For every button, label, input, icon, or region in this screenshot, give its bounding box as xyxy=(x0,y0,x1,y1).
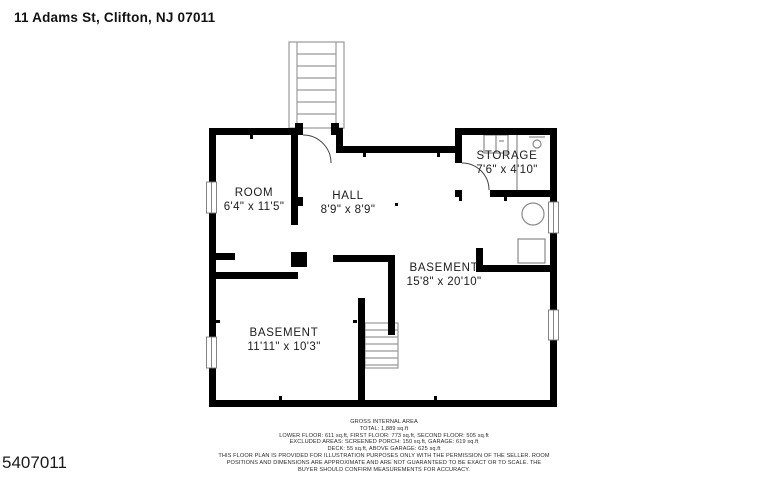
area-deck: DECK: 55 sq.ft, ABOVE GARAGE: 625 sq.ft xyxy=(0,446,768,453)
room-dimensions: 8'9" x 8'9" xyxy=(321,203,376,217)
room-name: BASEMENT xyxy=(406,261,481,275)
room-dimensions: 15'8" x 20'10" xyxy=(406,275,481,289)
room-label-storage: STORAGE 7'6" x 4'10" xyxy=(476,149,537,177)
wall-room-hall xyxy=(291,135,298,225)
stair-post-left xyxy=(295,123,303,135)
wall-storage-left xyxy=(455,135,462,163)
area-total: TOTAL: 1,889 sq.ft xyxy=(0,426,768,433)
window-right-upper xyxy=(549,202,559,233)
room-name: BASEMENT xyxy=(247,326,320,340)
disclaimer-line-3: BUYER SHOULD CONFIRM MEASUREMENTS FOR AC… xyxy=(0,467,768,474)
wall-basement2-top xyxy=(209,272,298,279)
utility-unit xyxy=(518,239,545,263)
room-label-room: ROOM 6'4" x 11'5" xyxy=(224,186,285,214)
water-tank xyxy=(522,203,544,225)
window-right-lower xyxy=(549,310,559,340)
room-label-hall: HALL 8'9" x 8'9" xyxy=(321,189,376,217)
wall-right xyxy=(550,128,557,407)
room-dimensions: 7'6" x 4'10" xyxy=(476,163,537,177)
area-summary-title: GROSS INTERNAL AREA xyxy=(0,419,768,426)
floor-plan-page: 11 Adams St, Clifton, NJ 07011 xyxy=(0,0,768,479)
floor-plan-drawing xyxy=(0,0,768,479)
shower-fixture xyxy=(529,137,545,148)
area-floors: LOWER FLOOR: 611 sq.ft, FIRST FLOOR: 773… xyxy=(0,433,768,440)
room-dimensions: 11'11" x 10'3" xyxy=(247,340,320,354)
room-label-basement-right: BASEMENT 15'8" x 20'10" xyxy=(406,261,481,289)
door-swing-stair xyxy=(303,135,331,163)
room-label-basement-left: BASEMENT 11'11" x 10'3" xyxy=(247,326,320,354)
wall-storage-bottom xyxy=(490,190,557,197)
room-dimensions: 6'4" x 11'5" xyxy=(224,200,285,214)
wall-hall-top xyxy=(336,146,462,153)
photo-id: 5407011 xyxy=(2,453,67,473)
area-excluded: EXCLUDED AREAS: SCREENED PORCH: 150 sq.f… xyxy=(0,439,768,446)
wall-stair-left xyxy=(358,298,365,407)
window-left-upper xyxy=(207,182,217,213)
wall-bottom xyxy=(209,400,557,407)
wall-storage-top xyxy=(455,128,557,135)
room-name: HALL xyxy=(321,189,376,203)
window-left-lower xyxy=(207,337,217,368)
area-summary: GROSS INTERNAL AREA TOTAL: 1,889 sq.ft L… xyxy=(0,419,768,473)
upper-staircase xyxy=(289,42,344,128)
disclaimer-line-2: POSITIONS AND DIMENSIONS ARE APPROXIMATE… xyxy=(0,460,768,467)
room-name: STORAGE xyxy=(476,149,537,163)
room-name: ROOM xyxy=(224,186,285,200)
disclaimer-line-1: THIS FLOOR PLAN IS PROVIDED FOR ILLUSTRA… xyxy=(0,453,768,460)
